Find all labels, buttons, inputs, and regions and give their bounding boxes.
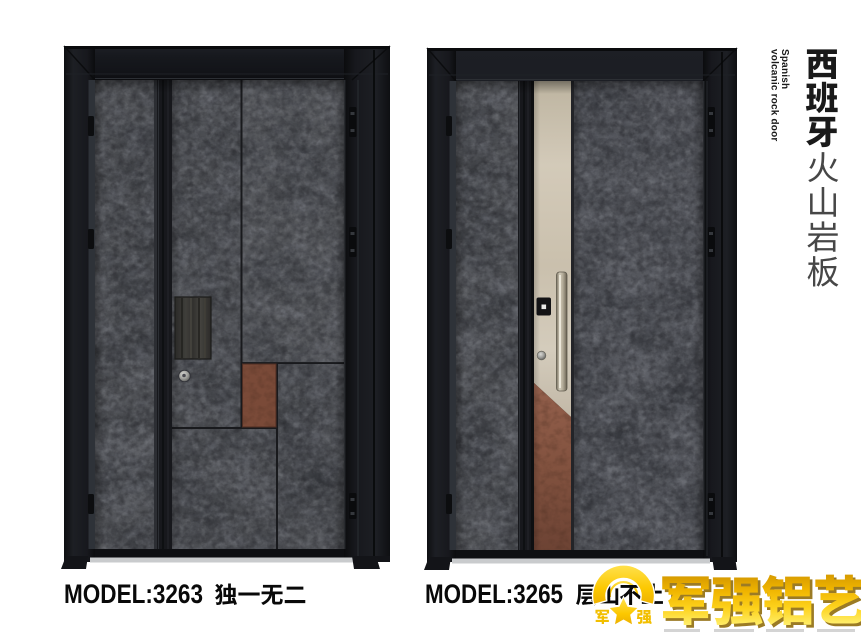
svg-text:MODEL:3263: MODEL:3263 [64,579,203,609]
svg-text:MODEL:3265: MODEL:3265 [425,579,563,609]
